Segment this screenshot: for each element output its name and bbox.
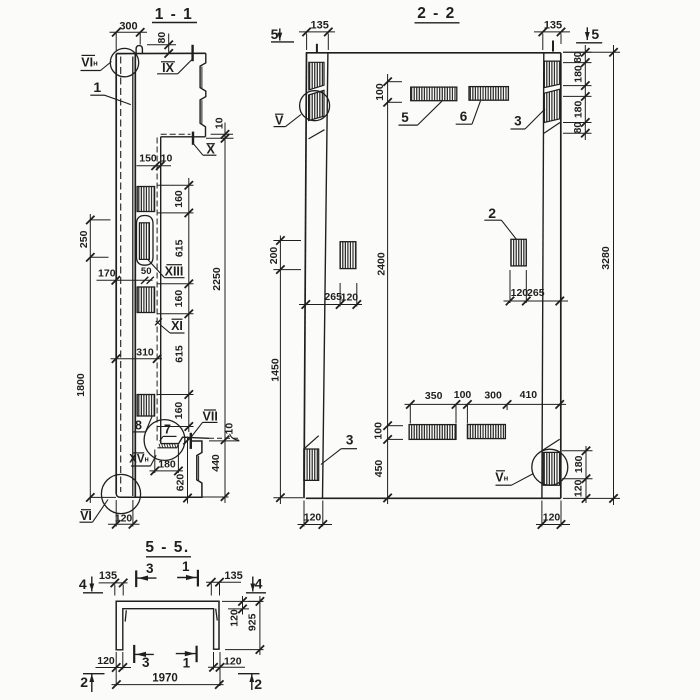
svg-text:8: 8 — [135, 419, 142, 433]
svg-text:135: 135 — [224, 570, 242, 582]
svg-text:10: 10 — [224, 423, 236, 435]
svg-text:2: 2 — [254, 676, 262, 692]
svg-text:3: 3 — [514, 114, 522, 129]
svg-text:150: 150 — [139, 153, 157, 165]
svg-text:615: 615 — [173, 345, 185, 363]
svg-text:80: 80 — [572, 122, 584, 134]
svg-text:620: 620 — [174, 474, 186, 492]
svg-text:80: 80 — [572, 51, 584, 63]
svg-text:350: 350 — [425, 390, 443, 402]
svg-text:100: 100 — [373, 422, 385, 440]
svg-text:135: 135 — [544, 19, 562, 31]
svg-text:300: 300 — [119, 20, 137, 32]
svg-text:1 - 1: 1 - 1 — [155, 6, 194, 23]
svg-text:3280: 3280 — [600, 246, 612, 270]
svg-text:3: 3 — [346, 432, 354, 447]
svg-text:160: 160 — [173, 402, 185, 420]
svg-text:VI: VI — [80, 509, 92, 523]
svg-text:135: 135 — [99, 570, 117, 582]
svg-text:2: 2 — [488, 205, 496, 221]
svg-text:50: 50 — [141, 266, 152, 277]
svg-text:1: 1 — [183, 656, 191, 671]
svg-text:310: 310 — [136, 346, 154, 358]
svg-text:X: X — [207, 142, 216, 156]
svg-text:300: 300 — [484, 390, 502, 402]
svg-text:6: 6 — [460, 109, 468, 124]
svg-text:615: 615 — [173, 239, 185, 257]
svg-text:5 - 5.: 5 - 5. — [145, 539, 189, 556]
svg-text:180: 180 — [572, 65, 584, 83]
svg-text:3: 3 — [146, 561, 154, 576]
svg-text:100: 100 — [374, 83, 386, 101]
svg-text:450: 450 — [373, 460, 385, 478]
svg-text:1970: 1970 — [152, 672, 178, 684]
svg-text:2250: 2250 — [211, 267, 223, 291]
svg-text:170: 170 — [98, 268, 116, 280]
svg-text:7: 7 — [164, 422, 171, 436]
svg-text:120: 120 — [97, 655, 115, 667]
svg-text:1450: 1450 — [270, 358, 282, 382]
svg-text:160: 160 — [173, 190, 185, 208]
svg-text:4: 4 — [79, 576, 87, 592]
svg-text:135: 135 — [311, 19, 329, 31]
svg-text:410: 410 — [520, 389, 538, 401]
svg-text:5: 5 — [591, 26, 599, 42]
svg-text:VII: VII — [203, 409, 218, 423]
svg-text:120: 120 — [573, 479, 585, 497]
svg-text:V: V — [275, 114, 284, 128]
svg-text:120: 120 — [224, 656, 242, 668]
svg-text:2400: 2400 — [376, 252, 388, 276]
svg-text:10: 10 — [213, 117, 225, 129]
svg-text:1: 1 — [182, 559, 190, 574]
svg-text:440: 440 — [210, 454, 222, 472]
svg-text:1800: 1800 — [75, 373, 87, 397]
svg-text:5: 5 — [271, 26, 279, 42]
svg-text:4: 4 — [255, 576, 263, 592]
svg-text:160: 160 — [173, 290, 185, 308]
svg-text:XIII: XIII — [165, 264, 184, 278]
svg-text:180: 180 — [573, 455, 585, 473]
svg-text:1: 1 — [93, 79, 101, 95]
svg-text:3: 3 — [142, 655, 150, 670]
svg-text:2: 2 — [80, 674, 88, 690]
svg-text:265: 265 — [324, 291, 342, 303]
svg-text:250: 250 — [78, 230, 90, 248]
svg-text:XI: XI — [171, 319, 183, 333]
svg-text:2 - 2: 2 - 2 — [417, 5, 456, 22]
svg-text:180: 180 — [572, 100, 584, 118]
svg-text:100: 100 — [454, 389, 472, 401]
svg-text:5: 5 — [401, 110, 409, 125]
svg-text:180: 180 — [158, 459, 176, 471]
svg-text:925: 925 — [247, 613, 259, 631]
svg-text:80: 80 — [156, 32, 168, 44]
svg-text:IX: IX — [162, 61, 174, 75]
svg-text:200: 200 — [268, 247, 280, 265]
